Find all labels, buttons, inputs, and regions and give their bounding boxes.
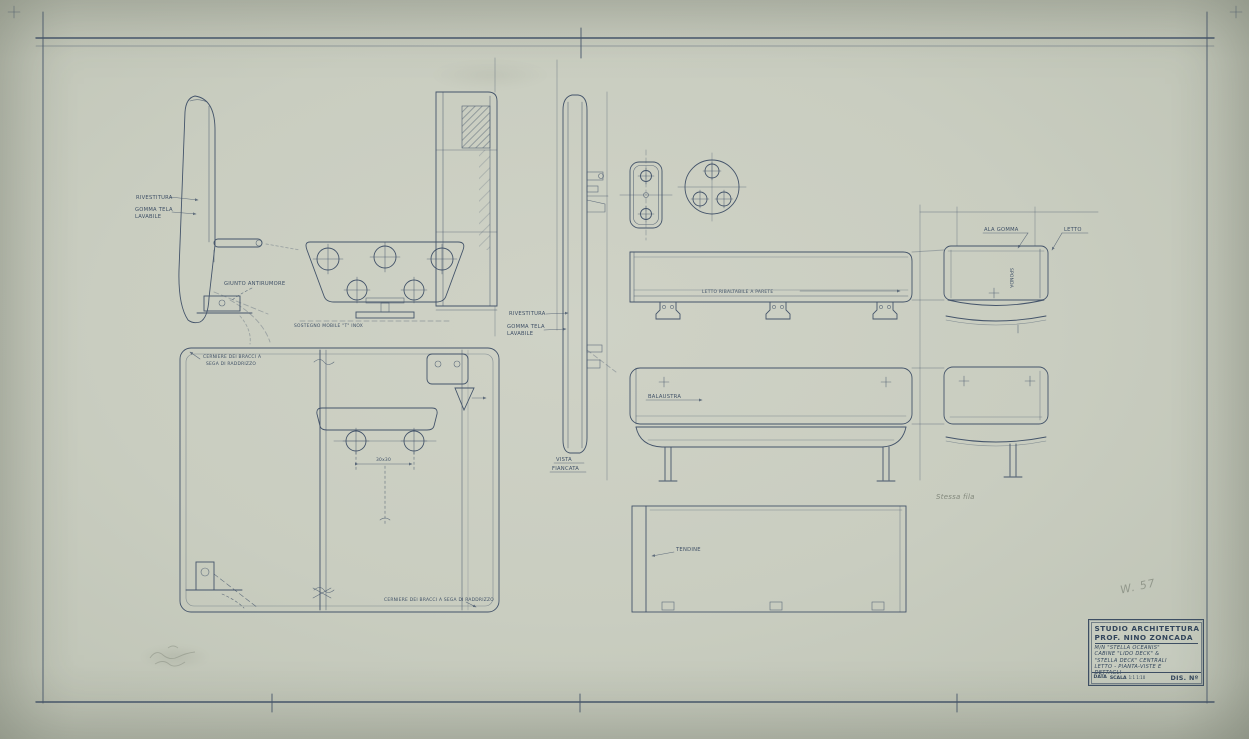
label-vista-line1: VISTA: [556, 457, 572, 463]
view-bed-end-top: SPONDA ALA GOMMA LETTO: [944, 227, 1088, 333]
detail-corner-hinge: [186, 562, 258, 608]
label-gomma-tela-left: GOMMA TELA: [135, 207, 173, 213]
leg-pad: [662, 602, 884, 610]
architect-name: PROF. NINO ZONCADA: [1095, 633, 1198, 644]
label-tendine: TENDINE: [675, 547, 701, 553]
view-side-panel-section: [436, 92, 497, 310]
title-block: STUDIO ARCHITETTURA PROF. NINO ZONCADA M…: [1088, 619, 1204, 686]
label-rivestitura-mid: RIVESTITURA: [509, 311, 546, 317]
border-tick-marks: [272, 28, 957, 712]
label-giunto-antirumore: GIUNTO ANTIRUMORE: [224, 281, 285, 287]
pencil-scribble: [150, 646, 195, 666]
view-headboard-section: RIVESTITURA GOMMA TELA LAVABILE GIUNTO A…: [135, 96, 300, 344]
studio-name: STUDIO ARCHITETTURA: [1095, 624, 1198, 633]
drawing-sheet: RIVESTITURA GOMMA TELA LAVABILE GIUNTO A…: [0, 0, 1249, 739]
label-balaustra: BALAUSTRA: [648, 394, 681, 400]
cross-mark-icon: [959, 376, 1035, 386]
scala-label: SCALA: [1110, 676, 1127, 681]
detail-support-arm: [214, 239, 300, 262]
detail-pivot-plate: 30x30: [317, 408, 437, 524]
view-hinge-plate-plan: SOSTEGNO MOBILE "T" INOX: [294, 242, 464, 329]
title-block-inner: STUDIO ARCHITETTURA PROF. NINO ZONCADA M…: [1091, 622, 1202, 684]
label-dim-30x30: 30x30: [376, 457, 391, 463]
break-mark: [314, 360, 334, 365]
data-label: DATA: [1094, 675, 1107, 680]
label-lavabile-left: LAVABILE: [135, 214, 161, 220]
view-bed-plan: 30x30 CERNIERE DEI BRACCI A SEGA DI RADD…: [180, 348, 499, 612]
label-sostegno-mobile: SOSTEGNO MOBILE "T" INOX: [294, 323, 363, 329]
label-letto: LETTO: [1064, 227, 1082, 233]
label-cerniere-bottom: CERNIERE DEI BRACCI A SEGA DI RADDRIZZO: [384, 597, 494, 603]
view-bed-side-folded: LETTO RIBALTABILE A PARETE: [630, 252, 912, 319]
detail-backplate: [620, 150, 672, 240]
label-stessa-fila: Stessa fila: [936, 493, 975, 501]
detail-hinge-foot: [197, 292, 270, 344]
scala-field: SCALA 1:1 1:10: [1110, 675, 1145, 681]
cross-mark-icon: [659, 377, 891, 387]
dis-number-label: DIS. Nº: [1171, 674, 1199, 682]
drawing-canvas: RIVESTITURA GOMMA TELA LAVABILE GIUNTO A…: [0, 0, 1249, 739]
cross-mark-icon: [989, 288, 999, 298]
view-bed-plan-bottom: TENDINE: [632, 506, 906, 612]
label-cerniere-line2: SEGA DI RADDRIZZO: [206, 361, 256, 367]
detail-latch-bracket: [427, 354, 486, 410]
corner-mark-icon: [8, 6, 1242, 18]
view-bed-side-open: BALAUSTRA: [630, 368, 912, 481]
mattress-profile: [636, 427, 906, 447]
bolt-hole: [313, 242, 457, 303]
label-gomma-tela-mid: GOMMA TELA: [507, 324, 545, 330]
detail-t-rail: [300, 298, 450, 321]
bed-leg: [659, 447, 895, 481]
label-lavabile-mid: LAVABILE: [507, 331, 533, 337]
wall-hook: [656, 302, 897, 319]
bed-leg: [1004, 444, 1022, 477]
view-bed-end-mid: Stessa fila: [936, 367, 1048, 501]
label-vista-line2: FIANCATA: [552, 466, 579, 472]
view-wall-section: RIVESTITURA GOMMA TELA LAVABILE VISTA FI…: [507, 95, 616, 472]
detail-hinge-mid: [587, 345, 616, 372]
label-letto-ribaltabile: LETTO RIBALTABILE A PARETE: [702, 289, 773, 295]
title-block-footer: DATA SCALA 1:1 1:10 DIS. Nº: [1092, 672, 1201, 683]
scala-value: 1:1 1:10: [1129, 675, 1146, 680]
label-sponda: SPONDA: [1008, 268, 1014, 288]
detail-circular-fitting: [678, 153, 746, 221]
label-cerniere-line1: CERNIERE DEI BRACCI A: [203, 354, 261, 360]
label-rivestitura-left: RIVESTITURA: [136, 195, 173, 201]
detail-hinge-upper: [587, 172, 608, 212]
label-ala-gomma: ALA GOMMA: [984, 227, 1019, 233]
